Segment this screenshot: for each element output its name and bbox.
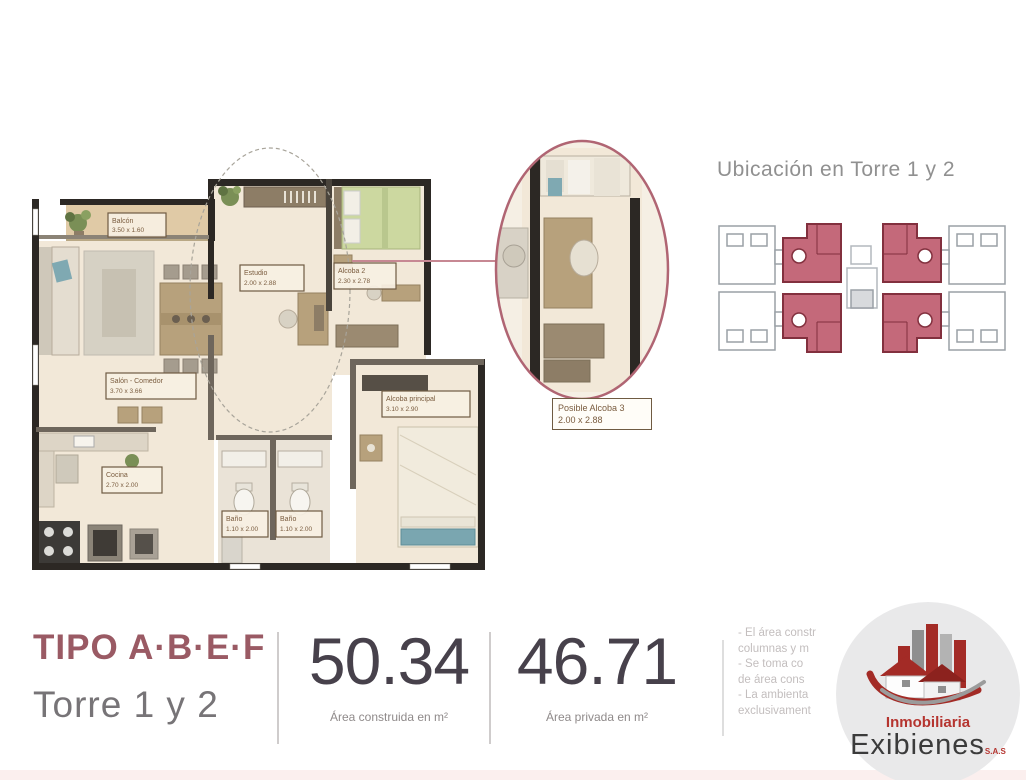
callout-room-name: Posible Alcoba 3: [558, 402, 646, 414]
callout-connector-line: [352, 260, 500, 262]
svg-text:1.10 x 2.00: 1.10 x 2.00: [280, 526, 313, 533]
svg-text:Baño: Baño: [226, 516, 242, 523]
svg-text:Estudio: Estudio: [244, 270, 267, 277]
logo-buildings-icon: [866, 624, 990, 712]
svg-text:Cocina: Cocina: [106, 472, 128, 479]
detail-callout-interior: [492, 138, 672, 402]
location-title: Ubicación en Torre 1 y 2: [717, 158, 955, 182]
svg-text:Balcón: Balcón: [112, 218, 134, 225]
tower-label: Torre 1 y 2: [33, 684, 265, 726]
estudio-closet: [244, 187, 326, 207]
principal-bed: [398, 427, 478, 547]
label-estudio: Estudio 2.00 x 2.88: [240, 265, 304, 291]
divider-3: [722, 640, 724, 736]
svg-text:3.50 x 1.60: 3.50 x 1.60: [112, 227, 145, 234]
svg-text:Alcoba principal: Alcoba principal: [386, 396, 436, 403]
rug: [84, 251, 154, 355]
sofa: [39, 247, 79, 355]
label-alcoba-principal: Alcoba principal 3.10 x 2.90: [382, 391, 470, 417]
svg-text:2.00 x 2.88: 2.00 x 2.88: [244, 280, 277, 287]
private-area-block: 46.71 Área privada en m²: [506, 628, 688, 724]
bottom-accent-strip: [0, 770, 1026, 780]
callout-room-dims: 2.00 x 2.88: [558, 414, 646, 426]
logo-brand-main: Exibienes: [850, 729, 985, 761]
svg-text:Baño: Baño: [280, 516, 296, 523]
label-bano-2: Baño 1.10 x 2.00: [276, 511, 322, 537]
built-area-caption: Área construida en m²: [298, 710, 480, 724]
stove: [38, 521, 80, 563]
principal-dresser: [362, 375, 428, 391]
label-salon-comedor: Salón - Comedor 3.70 x 3.66: [106, 373, 196, 399]
label-alcoba2: Alcoba 2 2.30 x 2.78: [334, 263, 396, 289]
svg-text:2.30 x 2.78: 2.30 x 2.78: [338, 278, 371, 285]
type-label: TIPO A·B·E·F: [33, 628, 265, 668]
built-area-block: 50.34 Área construida en m²: [298, 628, 480, 724]
principal-nightstand: [360, 435, 382, 461]
location-keyplan: [713, 212, 1011, 364]
svg-text:1.10 x 2.00: 1.10 x 2.00: [226, 526, 259, 533]
company-logo: Inmobiliaria ExibienesS.A.S: [836, 602, 1020, 780]
svg-text:3.10 x 2.90: 3.10 x 2.90: [386, 406, 419, 413]
alcoba2-dresser: [336, 325, 398, 347]
private-area-caption: Área privada en m²: [506, 710, 688, 724]
label-cocina: Cocina 2.70 x 2.00: [102, 467, 162, 493]
logo-brand-suffix: S.A.S: [985, 747, 1006, 756]
alcoba2-bed: [334, 187, 420, 249]
divider-1: [277, 632, 279, 744]
detail-callout: [492, 138, 672, 402]
built-area-value: 50.34: [298, 628, 480, 694]
svg-text:Alcoba 2: Alcoba 2: [338, 268, 365, 275]
keyplan-outline-units: [719, 226, 1005, 350]
private-area-value: 46.71: [506, 628, 688, 694]
svg-text:3.70 x 3.66: 3.70 x 3.66: [110, 388, 143, 395]
main-floorplan: Balcón 3.50 x 1.60 Salón - Comedor 3.70 …: [30, 135, 495, 575]
label-bano-1: Baño 1.10 x 2.00: [222, 511, 268, 537]
divider-2: [489, 632, 491, 744]
svg-text:2.70 x 2.00: 2.70 x 2.00: [106, 482, 139, 489]
flyer-page: Balcón 3.50 x 1.60 Salón - Comedor 3.70 …: [0, 0, 1026, 780]
type-block: TIPO A·B·E·F Torre 1 y 2: [33, 628, 265, 726]
label-balcon: Balcón 3.50 x 1.60: [108, 213, 166, 237]
callout-label: Posible Alcoba 3 2.00 x 2.88: [552, 398, 652, 430]
svg-text:Salón - Comedor: Salón - Comedor: [110, 378, 164, 385]
